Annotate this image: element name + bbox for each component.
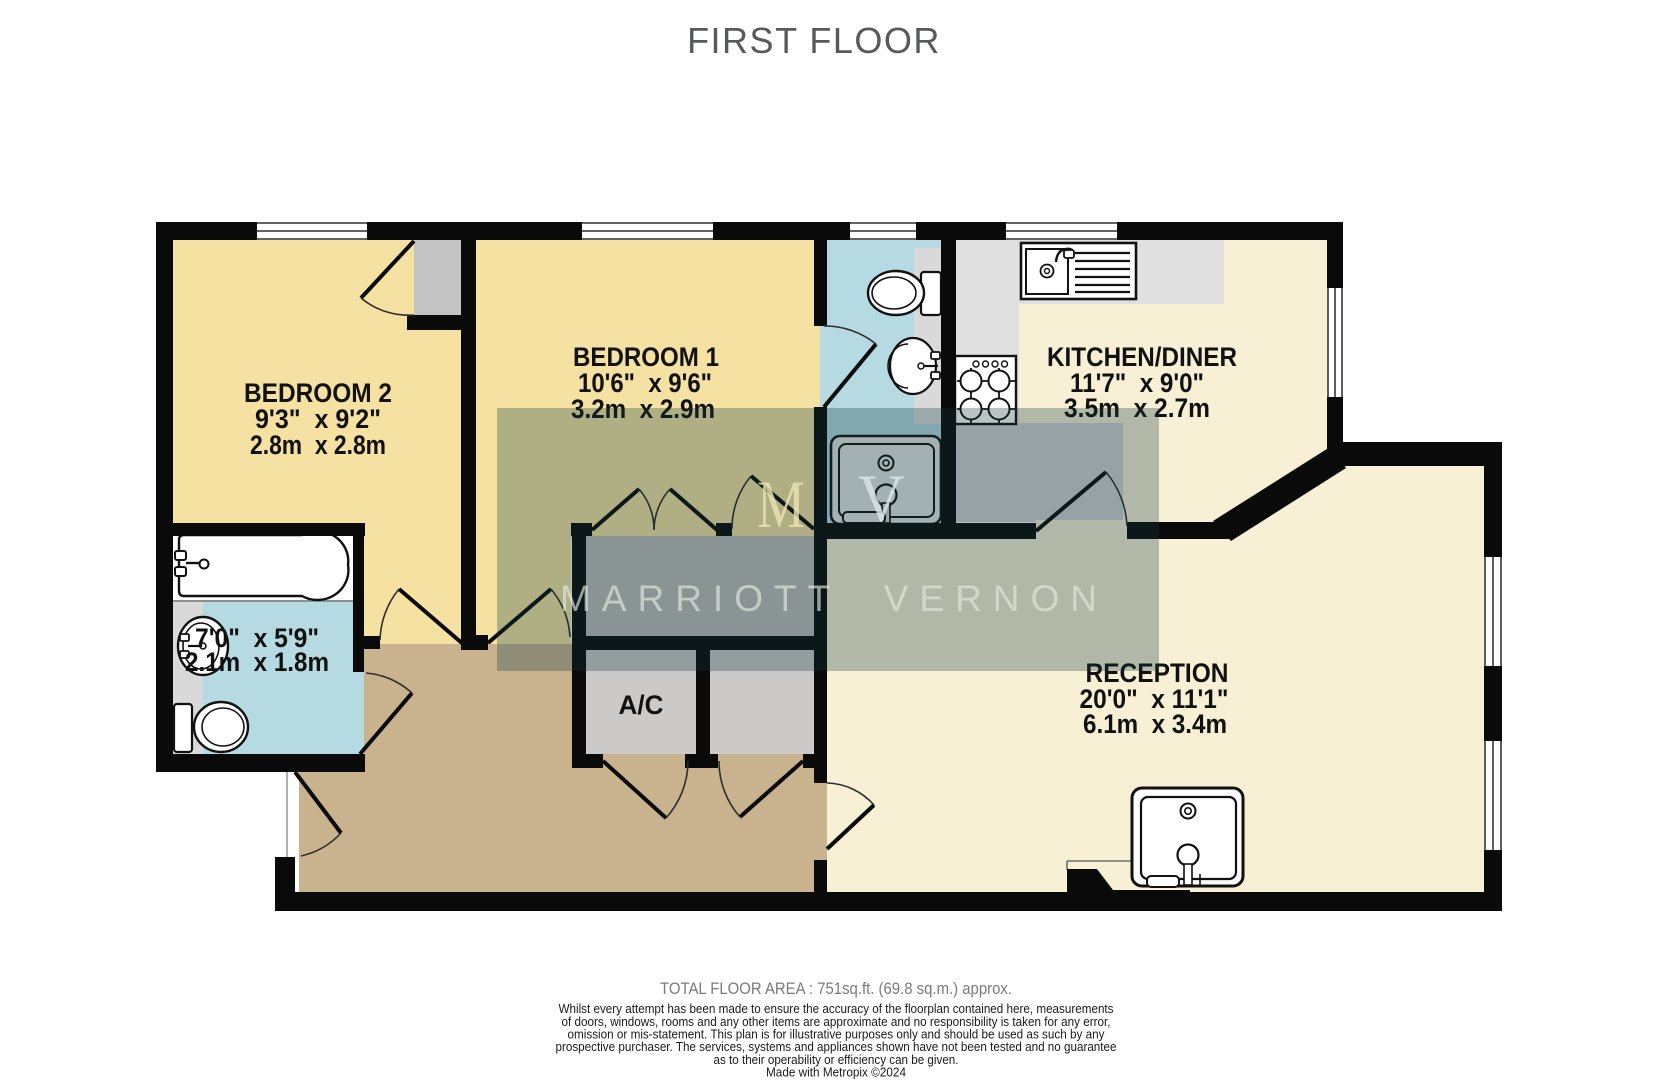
svg-text:TOTAL FLOOR AREA : 751sq.ft. (: TOTAL FLOOR AREA : 751sq.ft. (69.8 sq.m.… xyxy=(660,979,1012,998)
svg-text:FIRST FLOOR: FIRST FLOOR xyxy=(687,20,941,61)
svg-text:2.8m x 2.8m: 2.8m x 2.8m xyxy=(250,430,386,460)
svg-text:6.1m x 3.4m: 6.1m x 3.4m xyxy=(1083,709,1227,739)
svg-text:MARRIOTT VERNON: MARRIOTT VERNON xyxy=(560,578,1108,619)
svg-text:V: V xyxy=(858,460,905,536)
svg-text:M: M xyxy=(757,466,805,542)
svg-text:2.1m x 1.8m: 2.1m x 1.8m xyxy=(185,647,329,677)
svg-text:Made with Metropix ©2024: Made with Metropix ©2024 xyxy=(766,1065,906,1080)
svg-text:A/C: A/C xyxy=(619,690,664,720)
